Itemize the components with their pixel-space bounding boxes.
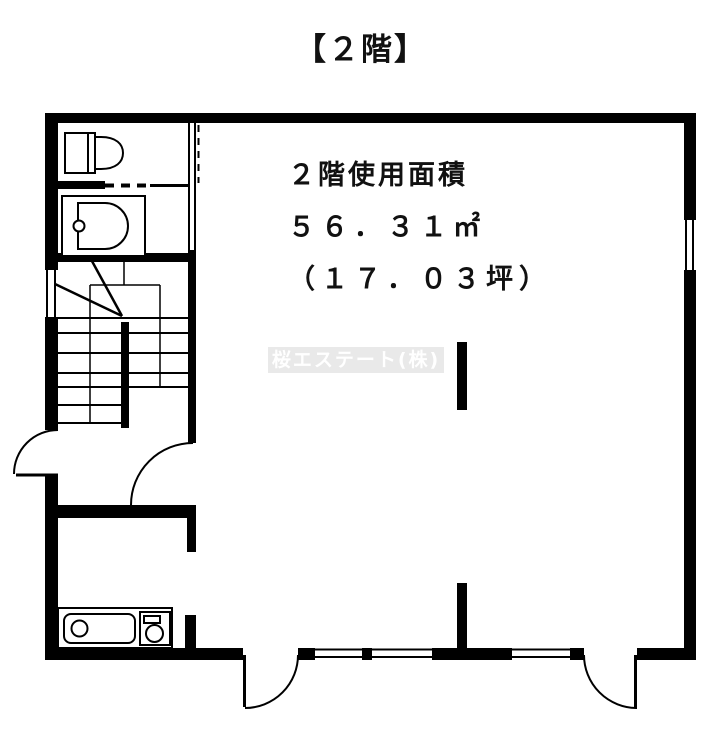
page-title: 【２階】 xyxy=(0,24,722,69)
door-bottom-right-icon xyxy=(584,655,637,708)
doors xyxy=(14,430,637,708)
door-hall-icon xyxy=(131,443,193,505)
wall-left xyxy=(45,113,58,660)
area-info-label: ２階使用面積 xyxy=(288,150,552,202)
floor-plan-page: 【２階】 ２階使用面積 ５６．３１㎡ （１７．０３坪） 桜エステート(株) xyxy=(0,0,722,729)
partition-bottom xyxy=(457,583,467,648)
area-info-tsubo: （１７．０３坪） xyxy=(288,254,552,306)
wall-right xyxy=(684,113,696,660)
wall-top xyxy=(45,113,696,123)
vanity-sink-icon xyxy=(62,196,145,256)
staircase xyxy=(55,252,188,428)
stove-icon xyxy=(140,612,170,645)
area-info-block: ２階使用面積 ５６．３１㎡ （１７．０３坪） xyxy=(288,150,552,306)
kitchen-sink-icon xyxy=(64,614,135,643)
toilet-icon xyxy=(65,133,123,173)
partition-middle xyxy=(457,342,467,410)
area-info-sqm: ５６．３１㎡ xyxy=(288,202,552,254)
watermark: 桜エステート(株) xyxy=(268,347,444,373)
kitchen-counter xyxy=(58,608,172,648)
door-bottom-left-icon xyxy=(245,655,299,708)
stair-center-wall xyxy=(121,322,129,428)
